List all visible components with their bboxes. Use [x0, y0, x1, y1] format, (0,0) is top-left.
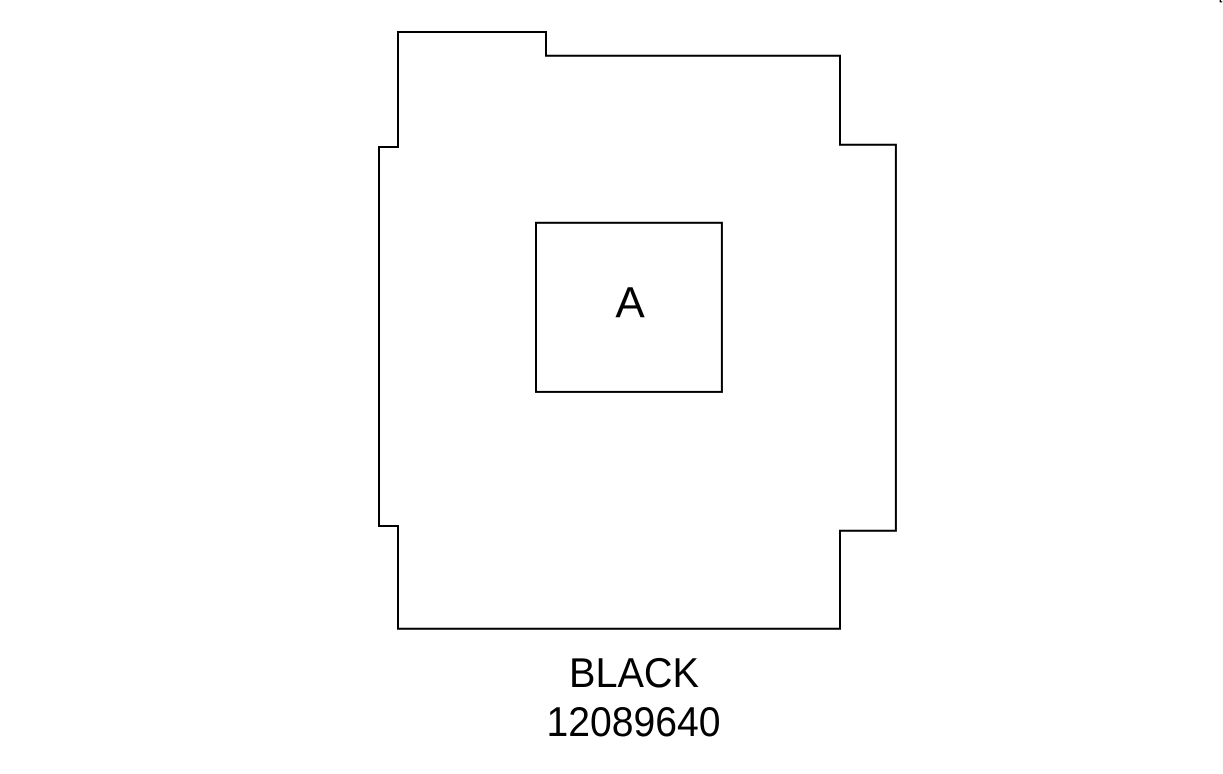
svg-text:A: A	[615, 279, 645, 328]
svg-text:BLACK: BLACK	[569, 649, 699, 696]
svg-text:12089640: 12089640	[547, 698, 721, 745]
